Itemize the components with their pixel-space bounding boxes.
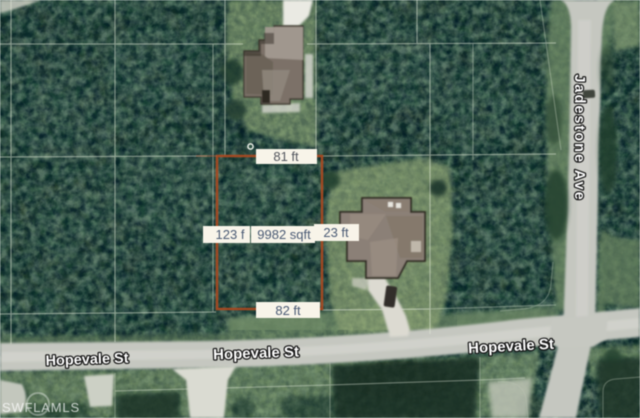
- svg-text:81 ft: 81 ft: [273, 149, 299, 164]
- svg-text:9982 sqft: 9982 sqft: [257, 227, 311, 242]
- svg-text:23 ft: 23 ft: [323, 225, 349, 240]
- svg-text:SWFLAMLS: SWFLAMLS: [2, 400, 80, 415]
- svg-text:Hopevale St: Hopevale St: [213, 344, 299, 364]
- svg-text:123 f: 123 f: [216, 227, 245, 242]
- svg-text:Hopevale St: Hopevale St: [45, 351, 129, 370]
- svg-text:82 ft: 82 ft: [275, 303, 301, 318]
- svg-text:Jadestone Ave: Jadestone Ave: [571, 74, 587, 201]
